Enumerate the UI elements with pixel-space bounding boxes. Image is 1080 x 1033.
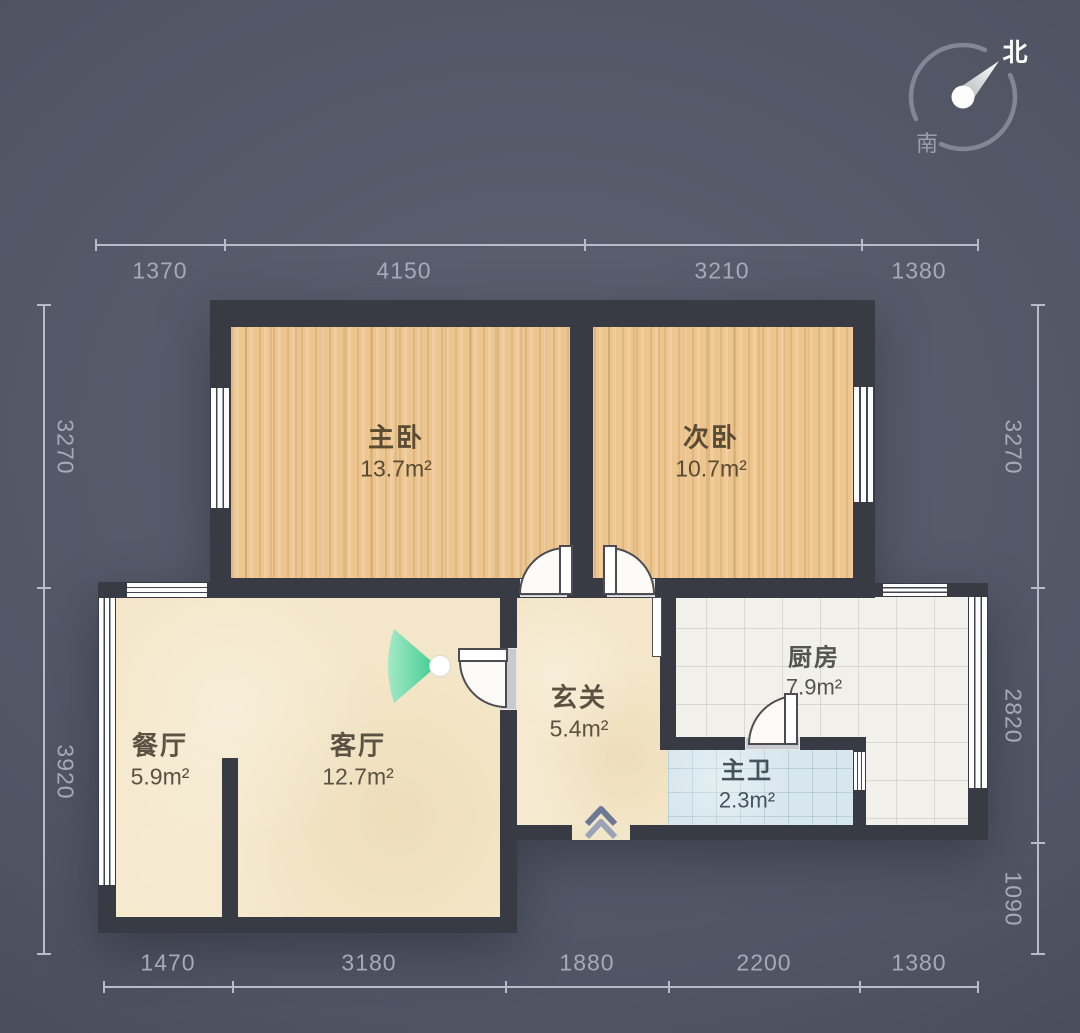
master-bedroom-door-icon <box>520 546 572 594</box>
bathroom-door-icon <box>749 694 797 744</box>
dim-top-3: 3210 <box>694 258 749 285</box>
master-bedroom-label: 主卧 13.7m² <box>360 421 432 482</box>
dimension-tick <box>37 953 51 955</box>
living-room-door-icon <box>459 649 507 707</box>
dim-right-2: 2820 <box>1000 688 1027 743</box>
second-bedroom-area: 10.7m² <box>675 454 747 483</box>
bathroom-label: 主卫 2.3m² <box>719 756 775 814</box>
dimension-line <box>1037 305 1039 955</box>
entry-hall-label: 玄关 5.4m² <box>550 681 609 742</box>
dimension-tick <box>584 239 586 251</box>
kitchen-label: 厨房 7.9m² <box>786 643 842 701</box>
dimension-tick <box>977 239 979 251</box>
entry-hall-area: 5.4m² <box>550 714 609 743</box>
dimension-tick <box>95 239 97 251</box>
dim-top-2: 4150 <box>376 258 431 285</box>
dim-top-4: 1380 <box>891 258 946 285</box>
entry-hall-name: 玄关 <box>550 681 609 714</box>
dim-bottom-2: 3180 <box>341 950 396 977</box>
second-bedroom-name: 次卧 <box>675 421 747 454</box>
dimension-line <box>103 986 979 988</box>
dimension-tick <box>1031 587 1045 589</box>
kitchen-area: 7.9m² <box>786 673 842 701</box>
dimension-tick <box>859 981 861 993</box>
dim-bottom-3: 1880 <box>559 950 614 977</box>
bathroom-area: 2.3m² <box>719 786 775 814</box>
dimension-tick <box>1031 304 1045 306</box>
dim-top-1: 1370 <box>132 258 187 285</box>
dimension-tick <box>224 239 226 251</box>
dimension-tick <box>1031 842 1045 844</box>
dimension-tick <box>103 981 105 993</box>
compass-north-label: 北 <box>1002 39 1027 67</box>
view-angle-fan-icon <box>388 629 451 703</box>
dim-bottom-1: 1470 <box>140 950 195 977</box>
dining-room-label: 餐厅 5.9m² <box>131 729 190 790</box>
living-room-name: 客厅 <box>322 729 394 762</box>
dimension-tick <box>37 587 51 589</box>
dim-right-3: 1090 <box>1000 871 1027 926</box>
dimension-tick <box>861 239 863 251</box>
dim-right-1: 3270 <box>1000 419 1027 474</box>
kitchen-name: 厨房 <box>786 643 842 673</box>
living-room-area: 12.7m² <box>322 762 394 791</box>
dimension-line <box>43 305 45 955</box>
dimension-tick <box>37 304 51 306</box>
bathroom-name: 主卫 <box>719 756 775 786</box>
dim-bottom-4: 2200 <box>736 950 791 977</box>
dimension-line <box>95 244 979 246</box>
dimension-tick <box>505 981 507 993</box>
dimension-tick <box>977 981 979 993</box>
dining-room-name: 餐厅 <box>131 729 190 762</box>
entrance-arrow-icon <box>587 809 615 837</box>
compass: 北 南 <box>890 25 1050 175</box>
dim-left-2: 3920 <box>52 744 79 799</box>
compass-needle-icon <box>952 61 1000 109</box>
second-bedroom-label: 次卧 10.7m² <box>675 421 747 482</box>
dim-bottom-5: 1380 <box>891 950 946 977</box>
dining-room-area: 5.9m² <box>131 762 190 791</box>
master-bedroom-name: 主卧 <box>360 421 432 454</box>
second-bedroom-door-icon <box>604 546 654 594</box>
living-room-label: 客厅 12.7m² <box>322 729 394 790</box>
dim-left-1: 3270 <box>52 419 79 474</box>
floor-plan-screenshot: 主卧 13.7m² 次卧 10.7m² 厨房 7.9m² 玄关 5.4m² 主卫… <box>0 0 1080 1033</box>
compass-south-label: 南 <box>916 131 938 156</box>
dimension-tick <box>232 981 234 993</box>
dimension-tick <box>668 981 670 993</box>
dimension-tick <box>1031 953 1045 955</box>
master-bedroom-area: 13.7m² <box>360 454 432 483</box>
